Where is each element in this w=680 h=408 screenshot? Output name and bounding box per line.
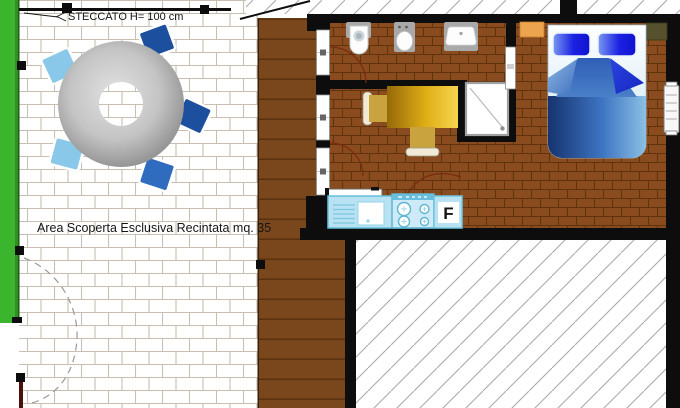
fence-label: STECCATO H= 100 cm bbox=[68, 11, 183, 23]
dining-chair-left bbox=[369, 95, 388, 122]
round-table-hole bbox=[99, 82, 143, 126]
deck-edge bbox=[258, 18, 260, 408]
fence-strip bbox=[0, 0, 22, 323]
dining-chair-bottom bbox=[410, 127, 435, 150]
shower bbox=[466, 83, 508, 135]
bedroom-door bbox=[506, 47, 516, 89]
area-label: Area Scoperta Esclusiva Recintata mq. 35 bbox=[37, 221, 271, 235]
sink bbox=[444, 22, 478, 51]
french-windows bbox=[317, 30, 330, 195]
fridge: F bbox=[434, 196, 462, 228]
window-2 bbox=[317, 95, 330, 140]
pillow-right bbox=[598, 33, 636, 56]
bed bbox=[548, 25, 646, 158]
nightstand-left bbox=[520, 22, 544, 37]
window-1 bbox=[317, 30, 330, 75]
dining-chair-bottom-back bbox=[406, 148, 439, 156]
deck-lower bbox=[318, 240, 345, 408]
radiator bbox=[664, 82, 679, 135]
stove bbox=[392, 194, 434, 228]
floor-plan: F STECCATO H= 100 cm Area Scoperta Esclu… bbox=[0, 0, 680, 408]
fridge-label: F bbox=[443, 204, 453, 223]
blanket bbox=[548, 96, 646, 158]
dining-table-top bbox=[387, 86, 458, 128]
pillow-left bbox=[553, 33, 590, 56]
bidet bbox=[394, 22, 415, 52]
hatch-area-bottom bbox=[356, 240, 666, 408]
nightstand-right bbox=[646, 23, 667, 40]
window-3 bbox=[317, 148, 330, 195]
